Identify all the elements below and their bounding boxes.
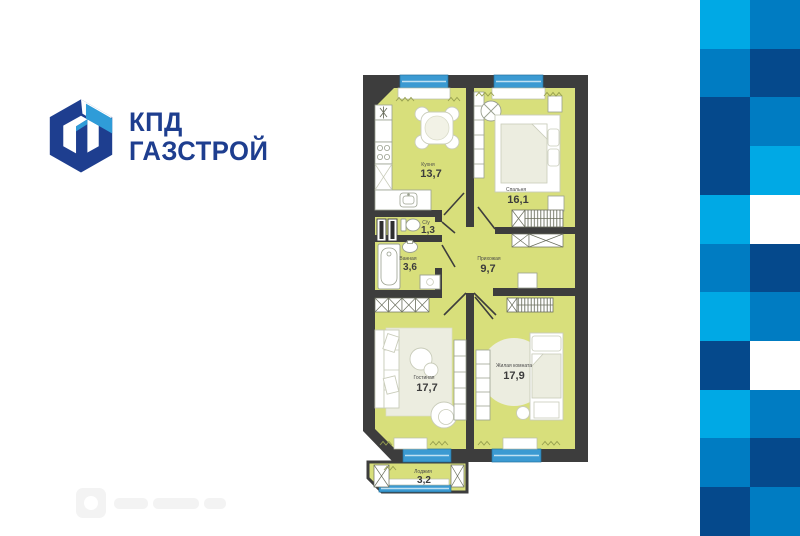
watermark <box>76 488 226 518</box>
checker-cell-medium <box>750 292 800 341</box>
room-label-bedroom: Спальня <box>506 187 526 193</box>
checker-cell-medium <box>700 49 750 98</box>
checker-cell-medium <box>750 0 800 49</box>
tv-unit <box>454 340 466 420</box>
washing-machine <box>420 275 440 289</box>
checkerboard <box>700 0 800 536</box>
page: КПД ГАЗСТРОЙ <box>0 0 800 536</box>
kitchen-counter <box>375 120 392 142</box>
stove <box>375 142 392 164</box>
bedroom-wardrobe <box>512 210 563 227</box>
room-label-living: Гостиная <box>414 375 435 381</box>
living-sofa <box>375 330 399 408</box>
armchair <box>431 402 457 428</box>
checker-cell-light <box>700 390 750 439</box>
checker-cell-dark <box>750 49 800 98</box>
checker-cell-white <box>750 341 800 390</box>
room-area-loggia: 3,2 <box>417 475 431 486</box>
floor-plan: Кухня 13,7 <box>360 72 590 496</box>
brand-logo: КПД ГАЗСТРОЙ <box>44 98 276 176</box>
checker-cell-white <box>750 195 800 244</box>
room-label-hallway: Прихожая <box>477 256 500 262</box>
room2-desk <box>476 350 490 420</box>
room-area-hallway: 9,7 <box>480 263 495 275</box>
brand-name: КПД ГАЗСТРОЙ <box>129 108 276 166</box>
checker-cell-medium <box>750 97 800 146</box>
checker-cell-dark <box>700 487 750 536</box>
brand-name-line1: КПД <box>129 108 268 137</box>
room-area-bathroom: 3,6 <box>403 262 417 273</box>
checker-cell-dark <box>700 97 750 146</box>
checker-cell-light <box>700 0 750 49</box>
bedroom-shelf <box>474 92 484 178</box>
room2-wardrobe <box>507 298 553 312</box>
watermark-logo-icon <box>76 488 106 518</box>
kitchen-sink <box>400 193 417 207</box>
room-area-kitchen: 13,7 <box>420 168 441 180</box>
checker-cell-medium <box>750 487 800 536</box>
checker-cell-medium <box>750 390 800 439</box>
checker-cell-dark <box>700 341 750 390</box>
room-area-wc: 1,3 <box>421 225 435 236</box>
checker-cell-medium <box>700 244 750 293</box>
room-area-second: 17,9 <box>503 370 524 382</box>
hall-cabinets-left <box>375 298 429 312</box>
room-area-bedroom: 16,1 <box>507 194 528 206</box>
bedroom-bed <box>495 115 560 192</box>
room2-stool <box>517 407 530 420</box>
toilet <box>401 219 420 231</box>
hall-cabinets-right <box>512 234 563 247</box>
checker-cell-light <box>700 292 750 341</box>
kitchen-table <box>415 107 459 149</box>
checker-cell-dark <box>700 146 750 195</box>
checker-cell-light <box>750 146 800 195</box>
brand-name-line2: ГАЗСТРОЙ <box>129 137 268 166</box>
room2-bed <box>530 333 563 420</box>
checker-cell-dark <box>750 244 800 293</box>
nightstand-bottom <box>548 196 564 211</box>
watermark-text-illegible <box>114 498 226 509</box>
checker-cell-light <box>700 195 750 244</box>
nightstand-top <box>548 96 562 112</box>
brand-hexagon-icon <box>44 98 118 176</box>
hall-cabinet <box>518 273 537 288</box>
room-label-second: Жилая комната <box>496 363 532 369</box>
bathtub <box>378 244 400 289</box>
room-area-living: 17,7 <box>416 382 437 394</box>
checker-cell-dark <box>750 438 800 487</box>
checker-cell-medium <box>700 438 750 487</box>
